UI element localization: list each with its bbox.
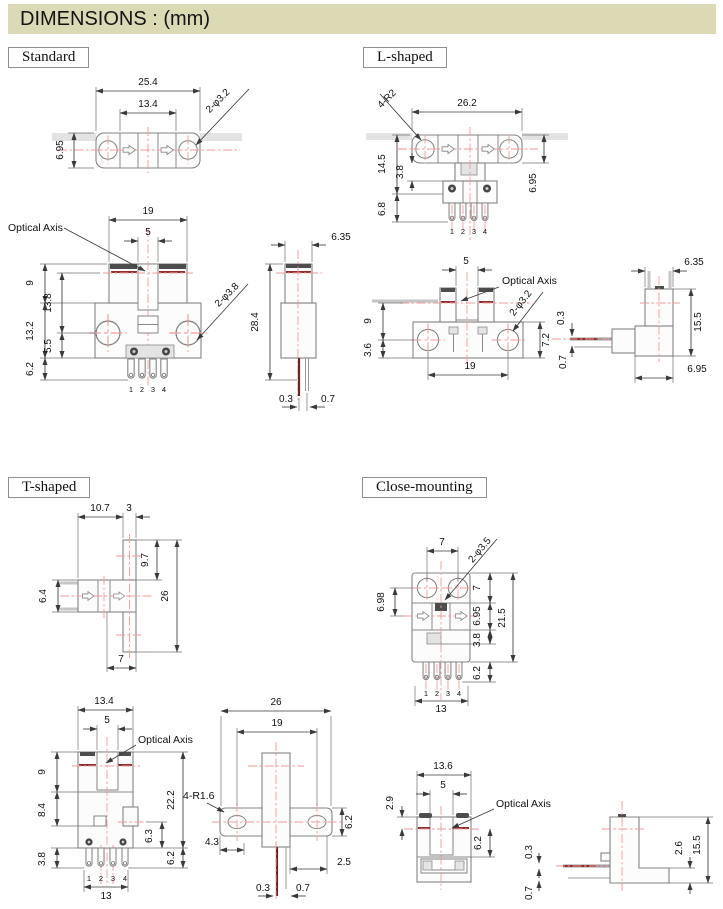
dim-label: 26.2 <box>457 98 477 109</box>
dim-label: 0.7 <box>558 355 569 369</box>
dim-label: 2.5 <box>337 857 351 868</box>
dim-label: 8.4 <box>37 803 48 817</box>
pin-number: 3 <box>446 689 450 698</box>
dim-label: 13 <box>100 891 112 902</box>
dim-label: 6.2 <box>344 815 355 829</box>
optical-axis-label: Optical Axis <box>496 798 551 810</box>
dim-label: 4-R2 <box>376 87 399 110</box>
dim-label: 6.2 <box>25 362 36 376</box>
dim-label: 5 <box>145 227 151 238</box>
pin-number: 3 <box>151 385 155 394</box>
dim-label: 9.7 <box>140 553 151 567</box>
pin-number: 2 <box>461 227 465 236</box>
dim-label: 10.7 <box>90 503 110 514</box>
pin-number: 1 <box>424 689 428 698</box>
dim-label: 6.3 <box>144 829 155 843</box>
dim-label: 7 <box>472 585 483 591</box>
pin-number: 4 <box>457 689 461 698</box>
standard-side-view: 6.35 28.4 0.3 0.7 <box>250 232 351 411</box>
l-shaped-front-view: 5 Optical Axis 2-φ3.2 9 3.6 19 7.2 0.3 0… <box>363 256 572 380</box>
dim-label: 15.5 <box>692 835 703 855</box>
dim-label: 6.95 <box>528 173 539 193</box>
standard-top-view: 25.4 13.4 6.95 2-φ3.2 <box>52 77 249 173</box>
dim-label: 22.2 <box>166 790 177 810</box>
dim-label: 6.4 <box>38 589 49 603</box>
t-shaped-side-view: 26 19 4-R1.6 4.3 6.2 2.5 0.3 0.7 <box>183 697 355 899</box>
dim-label: 2-φ3.5 <box>466 535 494 565</box>
pin-number: 2 <box>99 874 103 883</box>
dim-label: 6.95 <box>55 140 66 160</box>
dim-label: 6.8 <box>377 202 388 216</box>
dim-label: 6.2 <box>472 666 483 680</box>
l-shaped-top-view: 1 2 3 4 4-R2 26.2 14.5 3.8 6.8 6.95 <box>366 87 568 240</box>
pin-number: 4 <box>162 385 166 394</box>
dim-label: 21.5 <box>497 608 508 628</box>
dim-label: 28.4 <box>250 312 261 332</box>
dim-label: 13.6 <box>433 761 453 772</box>
t-shaped-top-view: 10.7 3 9.7 26 6.4 7 <box>38 503 182 672</box>
close-mounting-top-view: 1 2 3 4 7 2-φ3.5 6.98 7 6.95 3.8 6. <box>376 535 518 715</box>
pin-number: 4 <box>483 227 487 236</box>
dim-label: 3.8 <box>395 165 406 179</box>
dim-label: 9 <box>363 318 374 324</box>
dim-label: 0.7 <box>321 394 335 405</box>
pin-number: 1 <box>87 874 91 883</box>
dim-label: 7 <box>118 654 124 665</box>
dim-label: 3.8 <box>37 852 48 866</box>
dim-label: 26 <box>270 697 282 708</box>
pin-number: 2 <box>140 385 144 394</box>
dim-label: 13.4 <box>138 99 158 110</box>
l-shaped-side-view: 6.35 15.5 6.95 <box>552 257 707 383</box>
pin-number: 1 <box>129 385 133 394</box>
dim-label: 0.3 <box>524 845 535 859</box>
dim-label: 5 <box>440 780 446 791</box>
dim-label: 19 <box>142 206 154 217</box>
dim-label: 6.95 <box>687 364 707 375</box>
dim-label: 6.95 <box>472 606 483 626</box>
pin-number: 2 <box>435 689 439 698</box>
dim-label: 9 <box>37 769 48 775</box>
pin-number: 3 <box>472 227 476 236</box>
dim-label: 6.35 <box>684 257 704 268</box>
dim-label: 13 <box>435 704 447 715</box>
optical-axis-label: Optical Axis <box>502 275 557 287</box>
dim-label: 19 <box>464 361 476 372</box>
dim-label: 4-R1.6 <box>183 790 215 802</box>
pin-number: 4 <box>123 874 127 883</box>
dim-label: 13.2 <box>25 321 36 341</box>
dim-label: 6.98 <box>376 592 387 612</box>
datasheet-page: DIMENSIONS : (mm) Standard L-shaped T-sh… <box>0 0 723 909</box>
dim-label: 0.3 <box>256 883 270 894</box>
dim-label: 3.8 <box>472 633 483 647</box>
pin-number: 1 <box>450 227 454 236</box>
dim-label: 0.3 <box>556 311 567 325</box>
dim-label: 7 <box>439 537 445 548</box>
dim-label: 9 <box>25 280 36 286</box>
dim-label: 6.2 <box>473 836 484 850</box>
dim-label: 0.7 <box>296 883 310 894</box>
dim-label: 2.6 <box>674 841 685 855</box>
dimensions-drawing: 25.4 13.4 6.95 2-φ3.2 <box>0 0 723 909</box>
pin-number: 3 <box>111 874 115 883</box>
dim-label: 6.35 <box>331 232 351 243</box>
optical-axis-label: Optical Axis <box>138 734 193 746</box>
dim-label: 0.7 <box>524 886 535 900</box>
dim-label: 5 <box>104 715 110 726</box>
close-mounting-front-view: 13.6 5 Optical Axis 2.9 6.2 <box>385 761 551 890</box>
t-shaped-front-view: 1 2 3 4 13.4 5 Optical Axis 9 8.4 3.8 22… <box>37 696 193 902</box>
dim-label: 4.3 <box>205 837 219 848</box>
dim-label: 5.5 <box>43 339 54 353</box>
standard-front-view: 1 2 3 4 19 5 Optical Axis 9 13.8 13.2 5.… <box>8 206 248 394</box>
dim-label: 3 <box>126 503 132 514</box>
optical-axis-label: Optical Axis <box>8 222 63 234</box>
dim-label: 19 <box>271 718 283 729</box>
dim-label: 2.9 <box>385 796 396 810</box>
dim-label: 14.5 <box>377 154 388 174</box>
dim-label: 3.6 <box>363 343 374 357</box>
dim-label: 7.2 <box>541 333 552 347</box>
dim-label: 5 <box>463 256 469 267</box>
dim-label: 0.3 <box>279 394 293 405</box>
dim-label: 25.4 <box>138 77 158 88</box>
close-mounting-side-view: 0.3 0.7 2.6 15.5 <box>524 801 713 900</box>
dim-label: 15.5 <box>693 312 704 332</box>
dim-label: 13.4 <box>94 696 114 707</box>
dim-label: 26 <box>160 590 171 602</box>
dim-label: 6.2 <box>166 851 177 865</box>
